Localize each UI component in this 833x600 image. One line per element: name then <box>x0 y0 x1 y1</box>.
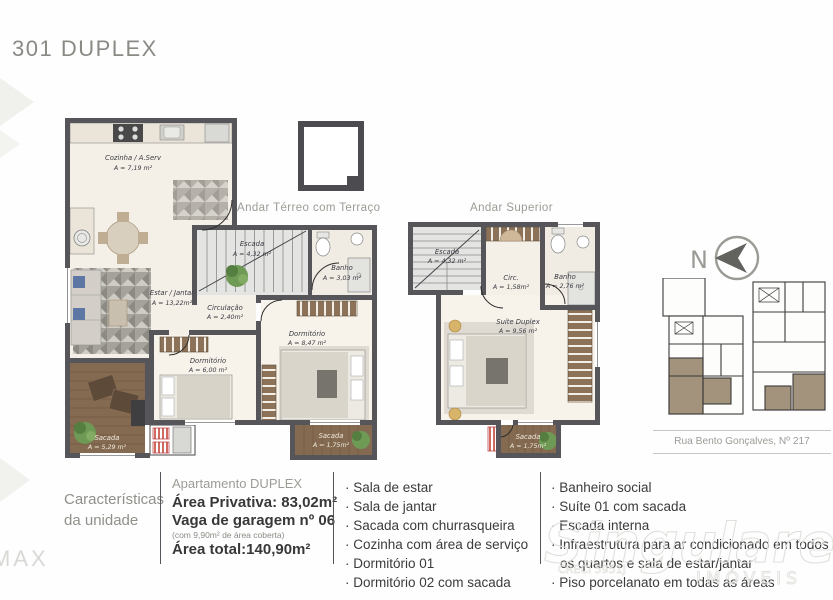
garage: Vaga de garagem nº 06 <box>172 512 337 530</box>
svg-text:A = 5,29 m²: A = 5,29 m² <box>87 444 127 451</box>
svg-text:A = 1,75m²: A = 1,75m² <box>312 442 350 449</box>
feature-item: Escada interna <box>551 516 831 535</box>
svg-text:A = 1,75m²: A = 1,75m² <box>509 443 547 450</box>
building-right <box>753 282 825 410</box>
divider <box>653 453 831 454</box>
feature-item: Infraestrutura para ar condicionado em t… <box>551 535 831 573</box>
north-label: N <box>690 246 708 274</box>
divider <box>540 472 541 564</box>
divider <box>333 472 334 564</box>
svg-text:Circ.: Circ. <box>503 274 518 282</box>
svg-text:A = 9,56 m²: A = 9,56 m² <box>498 328 538 335</box>
heading-line1: Características <box>64 489 164 510</box>
building-left <box>663 278 743 414</box>
closet-icon <box>486 227 540 241</box>
svg-text:A = 6,00 m²: A = 6,00 m² <box>188 367 228 374</box>
feature-item: Sala de jantar <box>345 497 528 516</box>
svg-text:Banho: Banho <box>554 273 576 281</box>
annex-box <box>301 124 361 188</box>
corner-max-watermark: MAX <box>0 546 49 572</box>
street-address: Rua Bento Gonçalves, Nº 217 <box>653 430 831 454</box>
svg-text:Estar / Jantar: Estar / Jantar <box>150 289 195 297</box>
site-key-plan <box>653 278 831 428</box>
corner-chevron-watermark <box>0 60 42 540</box>
svg-text:Suíte Duplex: Suíte Duplex <box>496 318 540 326</box>
divider <box>160 472 161 564</box>
svg-text:A = 2,40m²: A = 2,40m² <box>206 314 244 321</box>
svg-text:A = 13,22m²: A = 13,22m² <box>151 300 193 307</box>
svg-text:A = 3,03 m²: A = 3,03 m² <box>322 275 362 282</box>
unit-type: Apartamento DUPLEX <box>172 476 337 491</box>
private-area: Área Privativa: 83,02m² <box>172 494 337 512</box>
garage-note: (com 9,90m² de área coberta) <box>172 530 337 541</box>
svg-text:Dormitório: Dormitório <box>190 357 226 365</box>
svg-text:A = 4,32 m²: A = 4,32 m² <box>427 258 467 265</box>
street-text: Rua Bento Gonçalves, Nº 217 <box>653 431 831 453</box>
svg-text:Cozinha / A.Serv: Cozinha / A.Serv <box>105 154 162 162</box>
feature-item: Cozinha com área de serviço <box>345 535 528 554</box>
feature-item: Dormitório 01 <box>345 554 528 573</box>
page-title: 301 DUPLEX <box>12 36 158 62</box>
svg-text:Banho: Banho <box>331 264 353 272</box>
svg-text:Escada: Escada <box>435 248 459 256</box>
svg-text:A = 2,76 m²: A = 2,76 m² <box>545 283 585 290</box>
svg-text:Escada: Escada <box>240 240 264 248</box>
floorplan-sheet: MAX 301 DUPLEX Andar Térreo com Terraço … <box>0 0 833 600</box>
svg-text:Sacada: Sacada <box>95 434 120 442</box>
svg-text:Dormitório: Dormitório <box>289 330 325 338</box>
upper-floor-plan: Escada A = 4,32 m² Circ. A = 1,58m² Banh… <box>408 222 600 462</box>
feature-item: Suíte 01 com sacada <box>551 497 831 516</box>
unit-info-block: Apartamento DUPLEX Área Privativa: 83,02… <box>172 476 337 559</box>
svg-text:Circulação: Circulação <box>207 304 243 312</box>
svg-text:Sacada: Sacada <box>516 433 541 441</box>
ac-units-icon <box>150 425 195 455</box>
svg-text:A = 4,32 m²: A = 4,32 m² <box>232 251 272 258</box>
plan2-title: Andar Superior <box>470 202 553 214</box>
svg-text:A = 1,58m²: A = 1,58m² <box>492 284 530 291</box>
feature-item: Piso porcelanato em todas as áreas <box>551 573 831 592</box>
ground-floor-plan: Cozinha / A.Serv A = 7,19 m² Escada A = … <box>65 118 377 463</box>
living-room-furniture-icon <box>71 268 151 354</box>
svg-text:A = 7,19 m²: A = 7,19 m² <box>113 165 153 172</box>
feature-item: Sacada com churrasqueira <box>345 516 528 535</box>
features-list-2: Banheiro social Suíte 01 com sacada Esca… <box>551 478 831 592</box>
svg-text:A = 8,47 m²: A = 8,47 m² <box>287 340 327 347</box>
feature-item: Dormitório 02 com sacada <box>345 573 528 592</box>
feature-item: Sala de estar <box>345 478 528 497</box>
feature-item: Banheiro social <box>551 478 831 497</box>
svg-text:Sacada: Sacada <box>319 432 344 440</box>
features-list-1: Sala de estar Sala de jantar Sacada com … <box>345 478 528 592</box>
total-area: Área total:140,90m² <box>172 541 337 559</box>
unit-characteristics-heading: Características da unidade <box>64 489 164 531</box>
heading-line2: da unidade <box>64 510 164 531</box>
